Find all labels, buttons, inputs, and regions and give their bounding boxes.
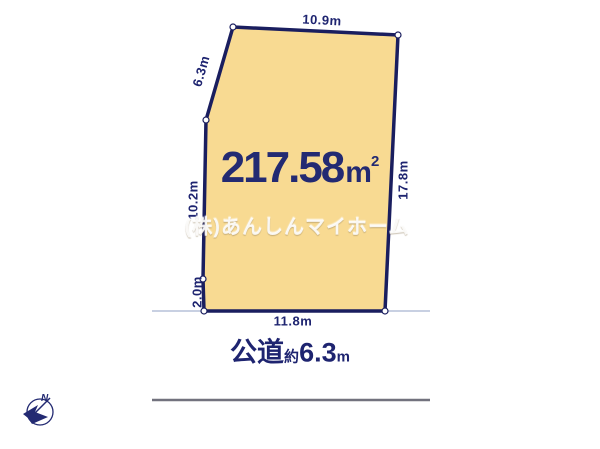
dimension-right: 17.8m (396, 160, 411, 199)
vertex-dot (201, 308, 207, 314)
road-approx: 約 (284, 349, 299, 366)
vertex-dot (382, 308, 388, 314)
compass-icon: N (23, 393, 53, 425)
vertex-dot (203, 117, 209, 123)
area-unit: m (345, 156, 371, 189)
area-unit-superscript: 2 (371, 153, 379, 170)
road-type: 公道 (230, 338, 284, 368)
north-letter: N (41, 393, 49, 404)
dimension-bottom: 11.8m (274, 314, 313, 329)
company-watermark: (株)あんしんマイホーム (185, 211, 410, 240)
dimension-lower-left: 2.0m (190, 276, 205, 308)
area-label: 217.58m2 (221, 146, 380, 190)
vertex-dot (230, 24, 236, 30)
road-label: 公道約6.3m (230, 340, 350, 367)
vertex-dot (395, 32, 401, 38)
land-plot-diagram: N 10.9m 6.3m 10.2m 2.0m 17.8m 11.8m 217.… (0, 0, 600, 449)
road-width-value: 6.3 (299, 338, 337, 368)
road-width-unit: m (337, 349, 350, 366)
area-value: 217.58 (221, 143, 344, 192)
dimension-top: 10.9m (302, 11, 342, 28)
